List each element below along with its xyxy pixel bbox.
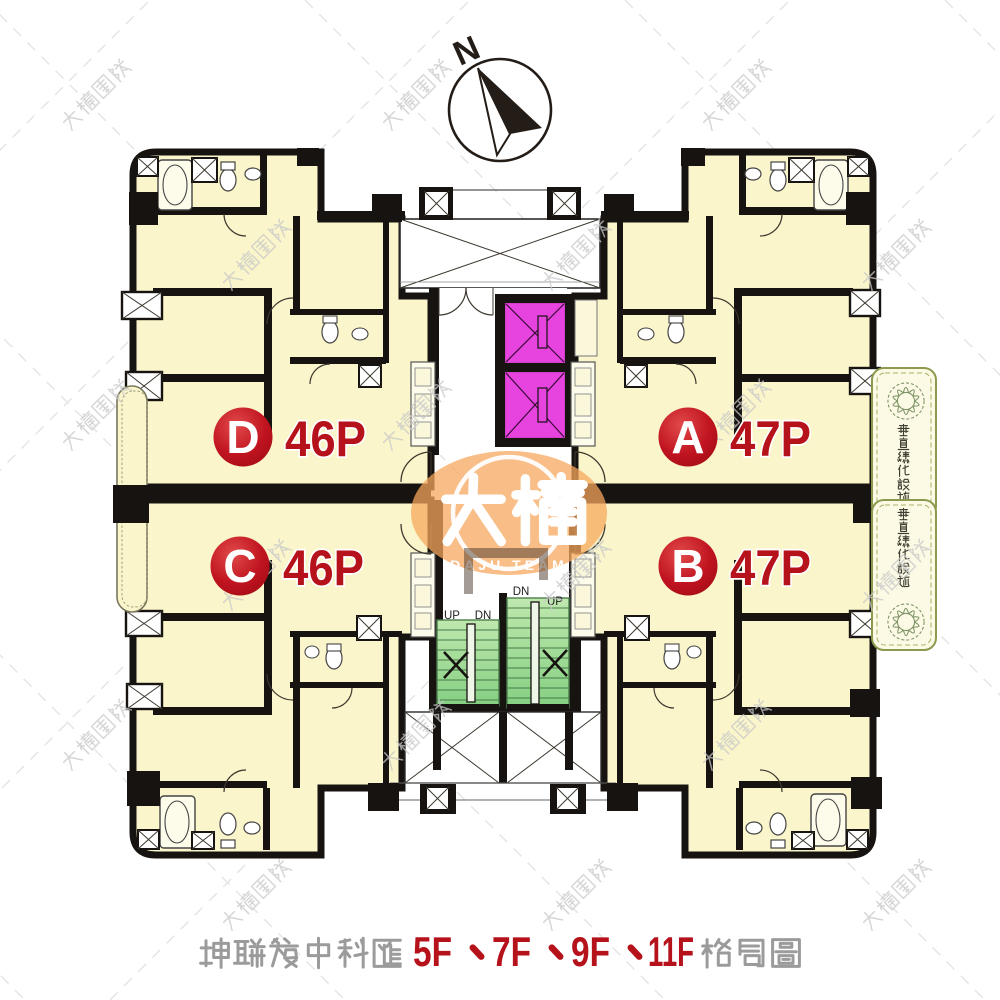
svg-text:C: C xyxy=(223,540,256,592)
svg-text:B: B xyxy=(671,540,704,592)
svg-text:47P: 47P xyxy=(730,540,811,596)
svg-text:9F: 9F xyxy=(571,928,610,975)
svg-text:7F: 7F xyxy=(492,928,531,975)
svg-text:46P: 46P xyxy=(283,540,364,596)
svg-text:DN: DN xyxy=(475,610,492,622)
svg-text:5F: 5F xyxy=(413,928,452,975)
svg-text:UP: UP xyxy=(444,610,460,622)
svg-text:11F: 11F xyxy=(648,928,694,975)
svg-text:D: D xyxy=(226,411,259,463)
svg-text:A: A xyxy=(671,411,704,463)
svg-text:DN: DN xyxy=(513,586,530,598)
svg-text:46P: 46P xyxy=(285,411,366,467)
svg-text:47P: 47P xyxy=(730,411,811,467)
